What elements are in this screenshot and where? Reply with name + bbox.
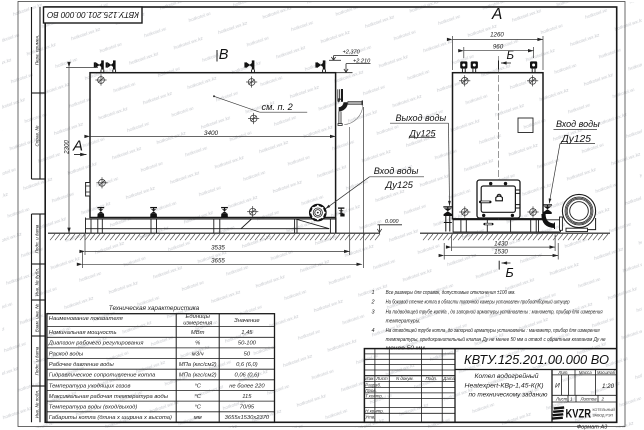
svg-text:Н.контр.: Н.контр. [365, 408, 384, 413]
svg-text:температуры, предохранительный: температуры, предохранительный клапан Ду… [386, 336, 606, 343]
svg-text:115: 115 [242, 394, 252, 400]
svg-text:1260: 1260 [490, 32, 504, 39]
svg-text:Температура уходящих газов: Температура уходящих газов [49, 383, 131, 389]
svg-text:3655: 3655 [211, 257, 225, 264]
svg-text:измерения: измерения [183, 320, 212, 326]
svg-text:Формат А3: Формат А3 [577, 425, 608, 430]
svg-text:0.000: 0.000 [385, 219, 399, 225]
svg-text:1430: 1430 [494, 240, 508, 247]
svg-text:+2.210: +2.210 [353, 59, 371, 65]
svg-text:%: % [195, 341, 200, 347]
svg-text:Выход воды: Выход воды [396, 113, 447, 123]
svg-text:2: 2 [371, 300, 375, 306]
svg-text:В: В [219, 47, 229, 63]
svg-text:температуры.: температуры. [386, 319, 421, 325]
svg-text:Рабочее давление воды: Рабочее давление воды [49, 362, 115, 368]
svg-text:N докум.: N докум. [396, 376, 414, 381]
svg-text:мм: мм [194, 415, 202, 421]
svg-text:Диапазон рабочего регулировани: Диапазон рабочего регулирования [48, 341, 144, 347]
svg-text:МПа (кгс/см2): МПа (кгс/см2) [179, 373, 217, 379]
svg-text:50-100: 50-100 [238, 341, 257, 347]
svg-text:На отводящей трубе котла ,до з: На отводящей трубе котла ,до запорной ар… [386, 327, 600, 334]
svg-text:3535: 3535 [211, 245, 225, 252]
svg-text:3655х1530х2370: 3655х1530х2370 [225, 415, 270, 421]
svg-text:см. п. 2: см. п. 2 [262, 102, 293, 112]
svg-text:Наименование показателя: Наименование показателя [49, 316, 123, 322]
svg-text:КОТЕЛЬНЫЙ: КОТЕЛЬНЫЙ [593, 408, 616, 412]
svg-text:0,06 (0,6): 0,06 (0,6) [234, 373, 259, 379]
svg-text:Номинальная мощность: Номинальная мощность [49, 330, 117, 336]
svg-text:Вход воды: Вход воды [374, 166, 419, 176]
svg-text:Значение: Значение [234, 318, 260, 324]
svg-text:Котел водогрейный: Котел водогрейный [475, 372, 540, 380]
svg-text:Дата: Дата [442, 376, 455, 381]
svg-text:Листов: Листов [580, 396, 598, 401]
svg-text:4: 4 [372, 328, 375, 334]
svg-text:°С: °С [194, 383, 201, 389]
svg-text:Гидравлическое сопротивление к: Гидравлическое сопротивление котла [49, 373, 156, 379]
svg-text:1530: 1530 [494, 249, 508, 256]
svg-text:МВт: МВт [191, 330, 205, 336]
svg-text:Габариты котла (длина х ширина: Габариты котла (длина х ширина х высота) [49, 415, 172, 421]
svg-text:2300: 2300 [64, 140, 71, 155]
svg-text:Взам. инв. №: Взам. инв. № [35, 304, 40, 332]
svg-text:°С: °С [194, 394, 201, 400]
svg-text:3400: 3400 [204, 130, 219, 137]
svg-text:960: 960 [493, 43, 504, 50]
svg-text:50: 50 [244, 351, 251, 357]
svg-text:КВТУ.125.201.00.000 ВО: КВТУ.125.201.00.000 ВО [464, 352, 609, 367]
svg-text:Масса: Масса [579, 370, 593, 375]
svg-text:Инв. № подл.: Инв. № подл. [35, 390, 40, 419]
svg-text:А: А [491, 6, 502, 23]
svg-text:КВТУ.125.201.00.000 ВО: КВТУ.125.201.00.000 ВО [47, 10, 139, 20]
svg-text:А: А [72, 138, 83, 155]
svg-text:м3/ч: м3/ч [192, 351, 204, 357]
svg-text:1: 1 [372, 290, 375, 296]
svg-text:Пров.: Пров. [365, 388, 377, 393]
svg-text:Изм.: Изм. [365, 376, 374, 381]
svg-text:Лист: Лист [375, 376, 388, 381]
svg-text:Техническая характеристика: Техническая характеристика [109, 305, 200, 312]
svg-text:Б: Б [506, 266, 514, 280]
svg-text:Единицы: Единицы [186, 314, 211, 320]
svg-text:по техническому заданию: по техническому заданию [469, 391, 548, 399]
svg-text:И: И [555, 383, 560, 390]
svg-text:1:20: 1:20 [602, 383, 615, 390]
svg-text:Вход воды: Вход воды [556, 119, 600, 129]
svg-text:Подп.: Подп. [426, 376, 438, 381]
svg-text:Heatexpert-КВр-1,45-К(К): Heatexpert-КВр-1,45-К(К) [465, 383, 544, 390]
svg-text:Все размеры для справок, допус: Все размеры для справок, допустимые откл… [386, 290, 516, 296]
svg-text:Подп. и дата: Подп. и дата [35, 224, 40, 253]
svg-text:1,45: 1,45 [241, 330, 253, 336]
svg-text:Ду125: Ду125 [409, 129, 437, 139]
svg-text:2: 2 [601, 396, 605, 401]
svg-text:Разраб.: Разраб. [365, 382, 381, 387]
svg-text:Справ. №: Справ. № [35, 126, 40, 147]
svg-text:Т.контр.: Т.контр. [365, 394, 383, 399]
svg-text:Утв.: Утв. [365, 414, 375, 419]
svg-text:°С: °С [194, 405, 201, 411]
svg-text:Лист: Лист [555, 396, 568, 401]
svg-text:Максимальная рабочая температу: Максимальная рабочая температура воды [49, 394, 169, 400]
svg-text:Расход воды: Расход воды [49, 351, 84, 357]
svg-text:Инв. № дубл.: Инв. № дубл. [35, 268, 40, 296]
svg-text:Масштаб: Масштаб [597, 370, 615, 375]
svg-text:На подводящей трубе котла ,: На подводящей трубе котла , до запорной … [386, 308, 603, 315]
svg-text:ЗАВОД РЭП: ЗАВОД РЭП [593, 413, 614, 417]
svg-text:Лит.: Лит. [557, 370, 568, 375]
svg-text:МПа (кгс/см2): МПа (кгс/см2) [179, 362, 217, 368]
svg-text:Перв. примен.: Перв. примен. [35, 35, 40, 66]
svg-text:Ду125: Ду125 [385, 180, 414, 191]
svg-text:KVZR: KVZR [566, 407, 592, 421]
svg-text:На боковой стенке котла в обла: На боковой стенке котла в области топочн… [386, 299, 570, 306]
svg-text:0,6 (6,0): 0,6 (6,0) [236, 362, 258, 368]
svg-text:Б: Б [507, 50, 515, 62]
svg-text:70/95: 70/95 [240, 405, 255, 411]
svg-text:не более 220: не более 220 [229, 383, 265, 389]
svg-text:Температура воды (вход/выход): Температура воды (вход/выход) [49, 405, 138, 411]
svg-text:Подп. и дата: Подп. и дата [35, 346, 40, 375]
svg-text:+2.370: +2.370 [343, 50, 361, 56]
